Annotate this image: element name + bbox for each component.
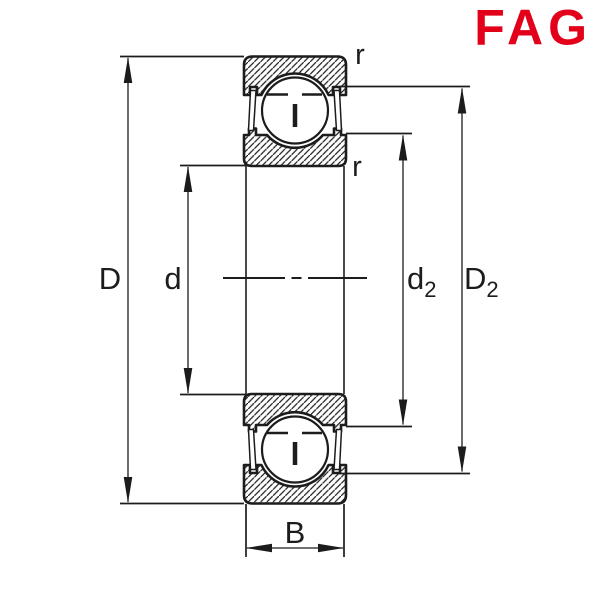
shield-top-right: [334, 91, 342, 131]
dimension-B: B: [246, 504, 344, 557]
label-r-bottom: r: [352, 151, 362, 183]
dimension-d: d: [164, 166, 246, 395]
label-r-top: r: [355, 39, 365, 71]
arrow-down: [124, 477, 133, 503]
label-d2: d2: [407, 261, 437, 302]
fag-logo: FAG: [474, 0, 592, 56]
arrow-down: [399, 400, 408, 426]
arrow-up: [458, 88, 467, 114]
shield-top-left: [249, 91, 257, 131]
shield-bottom-left: [249, 430, 257, 470]
arrow-right: [318, 544, 344, 553]
bearing-section-top: [244, 57, 346, 167]
label-D2: D2: [464, 261, 499, 302]
arrow-left: [246, 544, 272, 553]
label-d: d: [164, 261, 181, 296]
bearing-drawing: D d d2 D2 B r r FAG: [0, 0, 600, 600]
arrow-up: [124, 57, 133, 83]
label-D: D: [99, 261, 121, 296]
label-B: B: [285, 515, 306, 550]
arrow-up: [399, 135, 408, 161]
arrow-down: [458, 447, 467, 473]
arrow-down: [184, 368, 193, 394]
shield-bottom-right: [334, 430, 342, 470]
bearing-section-bottom: [244, 394, 346, 504]
arrow-up: [184, 166, 193, 192]
